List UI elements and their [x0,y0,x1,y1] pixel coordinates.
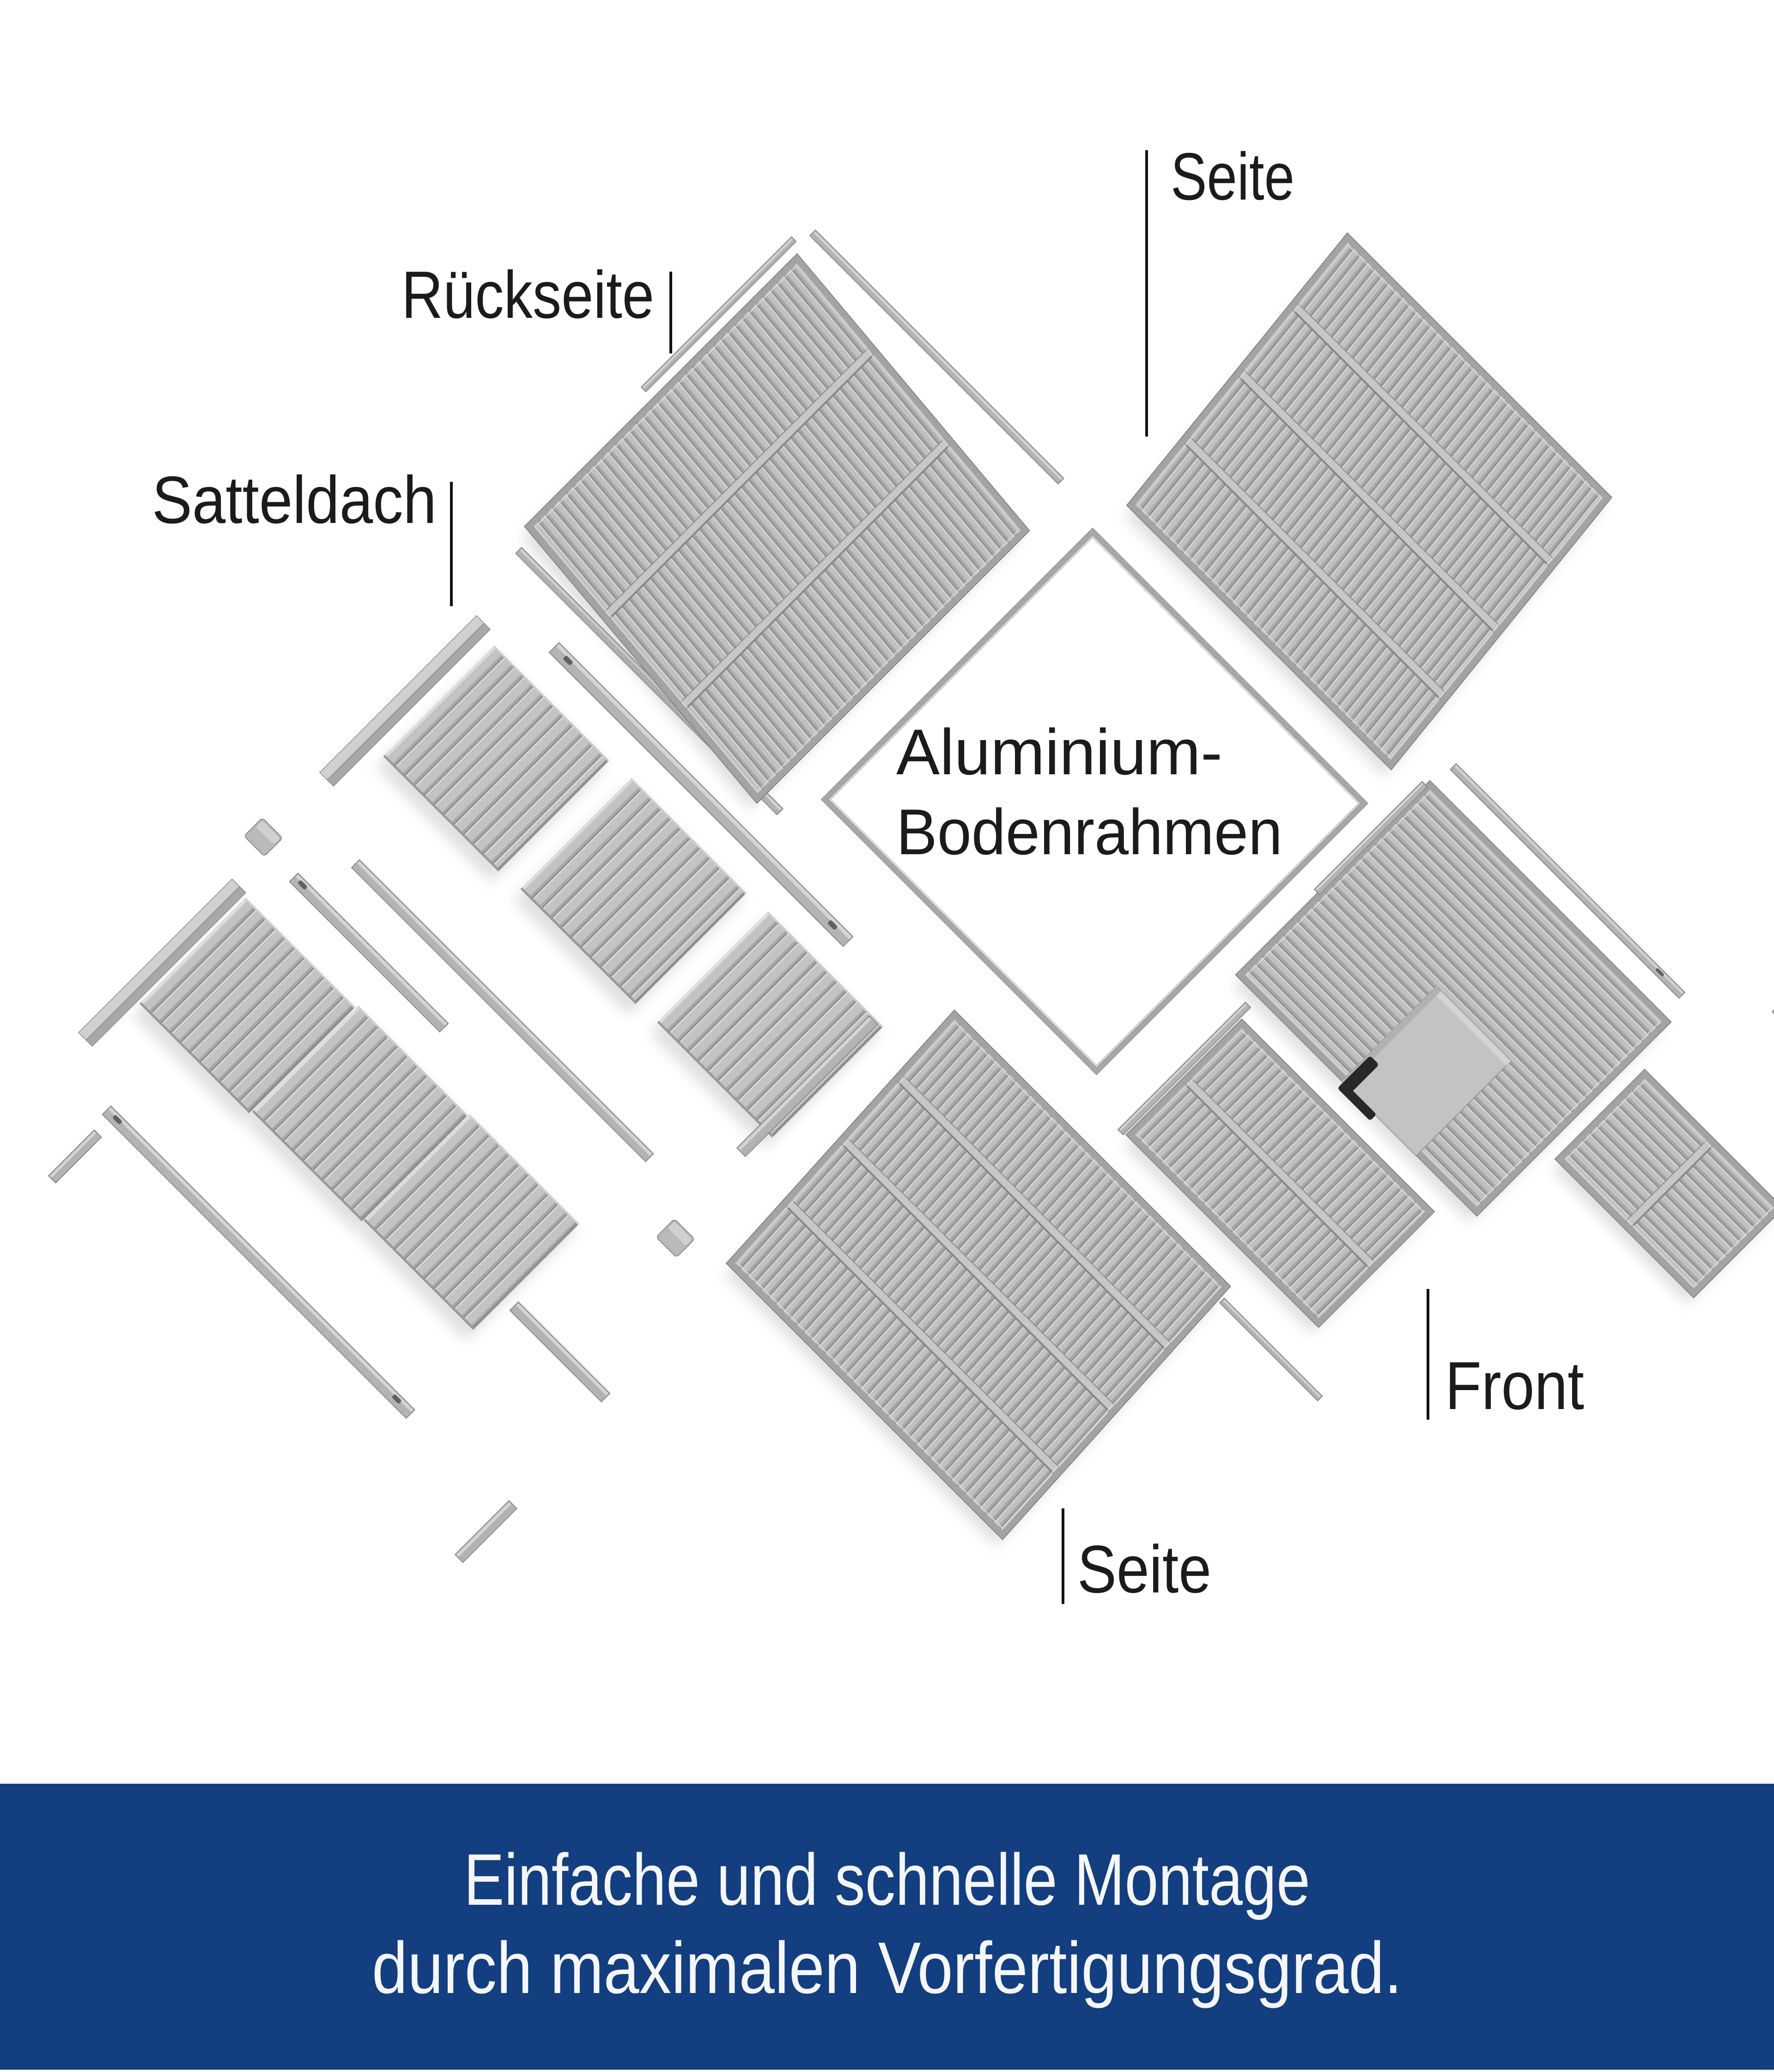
svg-text:durch maximalen Vorfertigungsg: durch maximalen Vorfertigungsgrad. [372,1927,1402,2009]
svg-text:Satteldach: Satteldach [152,462,437,537]
svg-text:Seite: Seite [1077,1531,1211,1607]
svg-text:Rückseite: Rückseite [401,257,654,332]
svg-text:Front: Front [1445,1348,1584,1424]
svg-text:Bodenrahmen: Bodenrahmen [896,796,1282,868]
svg-text:Einfache und schnelle Montage: Einfache und schnelle Montage [464,1839,1310,1920]
svg-text:Aluminium-: Aluminium- [896,716,1222,788]
svg-text:Seite: Seite [1171,139,1294,214]
